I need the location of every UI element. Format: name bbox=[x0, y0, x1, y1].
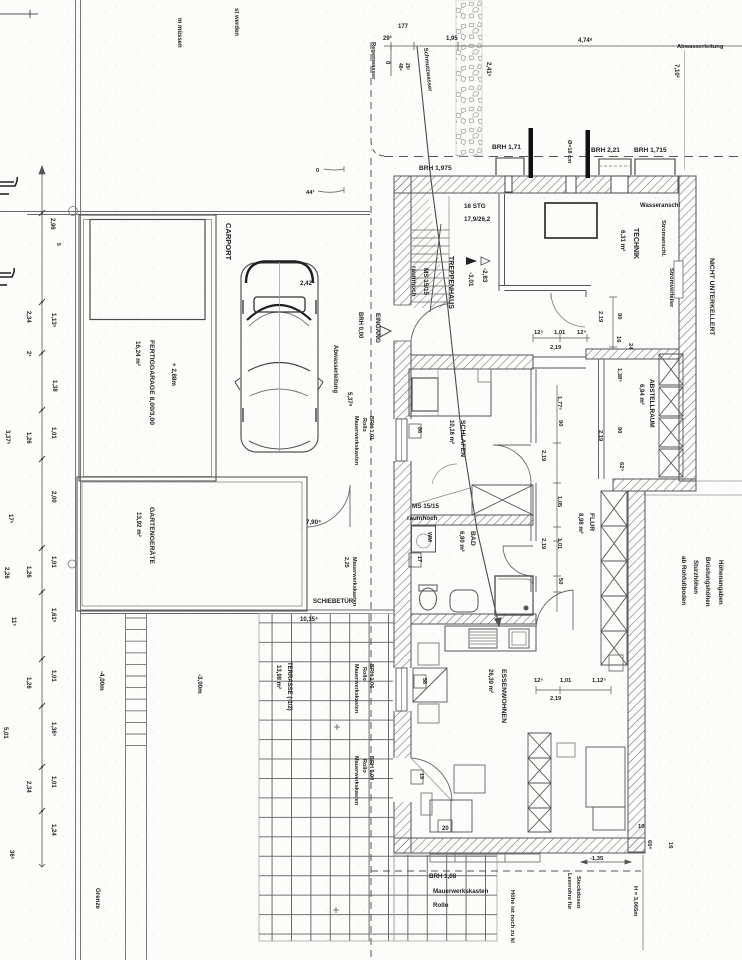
svg-text:TECHNIK: TECHNIK bbox=[632, 228, 639, 259]
svg-text:SCHLAFEN: SCHLAFEN bbox=[459, 420, 466, 457]
svg-text:12⁵: 12⁵ bbox=[534, 330, 543, 336]
svg-text:Höhenangaben: Höhenangaben bbox=[717, 560, 724, 605]
svg-text:177: 177 bbox=[398, 24, 409, 30]
svg-text:Rollo: Rollo bbox=[361, 759, 367, 773]
svg-text:1,01: 1,01 bbox=[554, 330, 566, 336]
svg-text:ABSTELLRAUM: ABSTELLRAUM bbox=[648, 379, 655, 428]
svg-text:1,38⁵: 1,38⁵ bbox=[616, 368, 622, 382]
svg-text:13,92 m²: 13,92 m² bbox=[135, 512, 142, 537]
svg-text:FERTIGGARAGE 8,00/3,00: FERTIGGARAGE 8,00/3,00 bbox=[148, 340, 155, 425]
svg-text:1,01: 1,01 bbox=[50, 776, 56, 788]
svg-text:86: 86 bbox=[416, 427, 422, 433]
svg-text:2,19: 2,19 bbox=[550, 696, 562, 702]
svg-text:Abwasserleitung: Abwasserleitung bbox=[677, 44, 724, 50]
svg-text:1,26: 1,26 bbox=[25, 677, 31, 689]
svg-text:Mauerwerkskasten: Mauerwerkskasten bbox=[353, 416, 359, 466]
svg-text:6,31 m²: 6,31 m² bbox=[619, 230, 626, 251]
svg-text:12⁵: 12⁵ bbox=[534, 678, 543, 684]
svg-text:BRH 1,08: BRH 1,08 bbox=[429, 873, 457, 880]
svg-text:20: 20 bbox=[442, 826, 449, 832]
svg-text:Rollo: Rollo bbox=[433, 902, 449, 909]
svg-text:Regenwasser: Regenwasser bbox=[370, 42, 376, 80]
svg-text:MS 15/15: MS 15/15 bbox=[412, 503, 439, 510]
svg-text:2¹: 2¹ bbox=[25, 351, 32, 356]
svg-text:2,34: 2,34 bbox=[25, 781, 31, 793]
svg-text:1,36⁵: 1,36⁵ bbox=[50, 722, 56, 737]
svg-text:48⁵: 48⁵ bbox=[397, 63, 403, 72]
svg-text:8,98 m²: 8,98 m² bbox=[577, 513, 584, 534]
svg-text:90: 90 bbox=[616, 313, 622, 319]
svg-text:1,95: 1,95 bbox=[446, 36, 458, 42]
svg-text:-3,00m: -3,00m bbox=[196, 674, 203, 694]
svg-text:-4,00m: -4,00m bbox=[98, 671, 105, 691]
svg-text:1,05: 1,05 bbox=[556, 496, 562, 508]
svg-text:5,37⁸: 5,37⁸ bbox=[346, 392, 352, 407]
svg-text:Mauerwerkskasten: Mauerwerkskasten bbox=[353, 664, 359, 714]
svg-text:2,19: 2,19 bbox=[597, 430, 603, 442]
svg-text:5: 5 bbox=[55, 243, 61, 246]
svg-text:H = 3,065m: H = 3,065m bbox=[632, 886, 638, 916]
svg-text:10: 10 bbox=[638, 824, 644, 830]
svg-text:BRH 0,00: BRH 0,00 bbox=[357, 312, 363, 339]
svg-text:TERRASSE (-1/2): TERRASSE (-1/2) bbox=[286, 662, 292, 711]
svg-text:BAD: BAD bbox=[469, 531, 476, 546]
svg-text:17: 17 bbox=[416, 556, 422, 562]
svg-text:BRH 0,00: BRH 0,00 bbox=[368, 756, 374, 780]
svg-text:Sturzhöhen: Sturzhöhen bbox=[692, 560, 699, 594]
svg-text:29³: 29³ bbox=[383, 35, 392, 42]
svg-text:BRH 1,975: BRH 1,975 bbox=[419, 165, 452, 172]
svg-text:BRH 1,715: BRH 1,715 bbox=[634, 147, 667, 154]
svg-text:1,61⁵: 1,61⁵ bbox=[50, 608, 56, 623]
svg-text:26,39 m²: 26,39 m² bbox=[487, 669, 494, 693]
svg-text:-2,83: -2,83 bbox=[481, 268, 488, 283]
svg-text:1,38: 1,38 bbox=[51, 380, 57, 392]
svg-text:1,13⁵: 1,13⁵ bbox=[50, 313, 56, 328]
svg-text:ESSENWOHNEN: ESSENWOHNEN bbox=[500, 669, 507, 723]
svg-text:2,25: 2,25 bbox=[343, 557, 349, 568]
svg-text:2,19: 2,19 bbox=[540, 450, 546, 462]
svg-text:WM: WM bbox=[426, 532, 432, 542]
svg-text:16: 16 bbox=[667, 842, 673, 849]
svg-text:1,77⁵: 1,77⁵ bbox=[556, 396, 562, 410]
svg-text:-3,01: -3,01 bbox=[467, 272, 474, 287]
svg-text:BRH 2,21: BRH 2,21 bbox=[591, 147, 620, 154]
svg-text:5,01: 5,01 bbox=[2, 727, 8, 739]
svg-text:Mauerwerkskasten: Mauerwerkskasten bbox=[433, 888, 489, 895]
svg-text:1,01: 1,01 bbox=[50, 670, 56, 682]
svg-text:44³: 44³ bbox=[306, 189, 314, 196]
svg-text:Mauerwerkskasten: Mauerwerkskasten bbox=[351, 557, 357, 607]
svg-text:Steckdosen: Steckdosen bbox=[575, 876, 581, 909]
svg-text:6,94 m²: 6,94 m² bbox=[638, 384, 645, 405]
svg-text:2,19: 2,19 bbox=[550, 345, 562, 351]
svg-text:m müssen: m müssen bbox=[176, 18, 182, 48]
svg-text:SCHIEBETÜR: SCHIEBETÜR bbox=[313, 598, 354, 605]
svg-text:EINGANG: EINGANG bbox=[374, 313, 381, 343]
svg-text:Grenze: Grenze bbox=[94, 888, 101, 910]
svg-text:-1,35: -1,35 bbox=[590, 856, 604, 862]
svg-text:11⁵: 11⁵ bbox=[10, 617, 16, 626]
svg-text:2,26: 2,26 bbox=[3, 567, 9, 579]
svg-text:4,74⁸: 4,74⁸ bbox=[578, 38, 593, 44]
svg-text:1,24: 1,24 bbox=[50, 824, 56, 836]
svg-text:50: 50 bbox=[557, 578, 563, 584]
svg-text:+ 2,88m: + 2,88m bbox=[170, 363, 177, 386]
svg-text:MS 15/15: MS 15/15 bbox=[422, 268, 429, 295]
svg-text:2,19: 2,19 bbox=[540, 538, 546, 550]
svg-text:7,10²: 7,10² bbox=[673, 64, 680, 78]
svg-text:raumhoch: raumhoch bbox=[410, 266, 417, 297]
svg-text:1,01: 1,01 bbox=[556, 538, 562, 550]
svg-text:17⁵: 17⁵ bbox=[7, 514, 13, 524]
svg-text:1,26: 1,26 bbox=[25, 432, 31, 444]
svg-text:16,24 m²: 16,24 m² bbox=[134, 341, 141, 366]
svg-text:6,80 m²: 6,80 m² bbox=[458, 531, 465, 552]
svg-text:1,26: 1,26 bbox=[25, 566, 31, 578]
svg-text:Ø=18 cm: Ø=18 cm bbox=[566, 140, 572, 163]
svg-text:Rollo: Rollo bbox=[361, 667, 367, 681]
svg-text:36⁵: 36⁵ bbox=[8, 850, 14, 860]
svg-text:16 STG: 16 STG bbox=[464, 203, 486, 210]
svg-text:29¹: 29¹ bbox=[404, 63, 410, 71]
svg-text:10,16 m²: 10,16 m² bbox=[448, 420, 455, 444]
svg-text:Mauerwerkskasten: Mauerwerkskasten bbox=[353, 756, 359, 806]
svg-text:ab Rohfußboden: ab Rohfußboden bbox=[680, 556, 687, 605]
svg-text:Stromanschl.: Stromanschl. bbox=[660, 220, 666, 257]
svg-text:1,12⁵: 1,12⁵ bbox=[592, 678, 606, 684]
svg-text:90: 90 bbox=[557, 420, 563, 426]
svg-text:19: 19 bbox=[418, 773, 424, 779]
svg-text:13,98 m²: 13,98 m² bbox=[275, 665, 282, 689]
svg-text:24: 24 bbox=[627, 343, 633, 350]
svg-text:1,01: 1,01 bbox=[50, 427, 56, 439]
svg-text:16: 16 bbox=[615, 336, 621, 343]
svg-text:Abwasserleitung: Abwasserleitung bbox=[332, 345, 338, 393]
svg-text:2,00: 2,00 bbox=[50, 491, 56, 503]
svg-text:BRH 1,71: BRH 1,71 bbox=[492, 144, 521, 151]
svg-text:17,9/26,2: 17,9/26,2 bbox=[464, 216, 491, 223]
svg-text:CARPORT: CARPORT bbox=[224, 223, 233, 261]
svg-text:2,42¹: 2,42¹ bbox=[300, 280, 314, 287]
svg-text:2,96: 2,96 bbox=[49, 218, 55, 230]
svg-text:Brüstungshöhen: Brüstungshöhen bbox=[704, 557, 711, 607]
svg-text:raumhoch: raumhoch bbox=[407, 515, 438, 522]
svg-text:0: 0 bbox=[316, 168, 319, 174]
svg-text:1,01: 1,01 bbox=[50, 556, 56, 568]
svg-text:12⁵: 12⁵ bbox=[577, 330, 586, 336]
svg-text:Leerrohre für: Leerrohre für bbox=[566, 873, 572, 910]
svg-text:7,90⁴: 7,90⁴ bbox=[306, 519, 321, 526]
svg-text:BRH 1,06: BRH 1,06 bbox=[368, 664, 374, 688]
svg-text:st werden: st werden bbox=[233, 8, 239, 36]
svg-text:3,37⁵: 3,37⁵ bbox=[4, 430, 10, 445]
svg-text:62⁵: 62⁵ bbox=[618, 462, 624, 471]
svg-text:FLUR: FLUR bbox=[588, 513, 595, 531]
svg-text:10,15⁴: 10,15⁴ bbox=[300, 617, 318, 623]
svg-text:2,19: 2,19 bbox=[597, 311, 603, 323]
svg-text:2,41⁵: 2,41⁵ bbox=[485, 62, 491, 77]
svg-text:58: 58 bbox=[421, 678, 427, 684]
svg-text:GARTENGERÄTE: GARTENGERÄTE bbox=[148, 507, 156, 564]
svg-text:90: 90 bbox=[616, 427, 622, 433]
svg-text:NICHT UNTERKELLERT: NICHT UNTERKELLERT bbox=[708, 258, 715, 336]
svg-text:TREPPENHAUS: TREPPENHAUS bbox=[447, 256, 454, 309]
svg-text:Höhe ist noch zu kl: Höhe ist noch zu kl bbox=[509, 890, 515, 943]
svg-text:2,34: 2,34 bbox=[25, 311, 31, 323]
svg-text:1,01: 1,01 bbox=[560, 678, 572, 684]
svg-text:Rollo: Rollo bbox=[361, 418, 367, 432]
svg-text:Wasseranschl: Wasseranschl bbox=[640, 203, 680, 209]
svg-text:Stromverteiler: Stromverteiler bbox=[668, 268, 674, 308]
svg-text:60⁸: 60⁸ bbox=[646, 840, 652, 849]
svg-text:BRH 1,01: BRH 1,01 bbox=[368, 416, 374, 440]
